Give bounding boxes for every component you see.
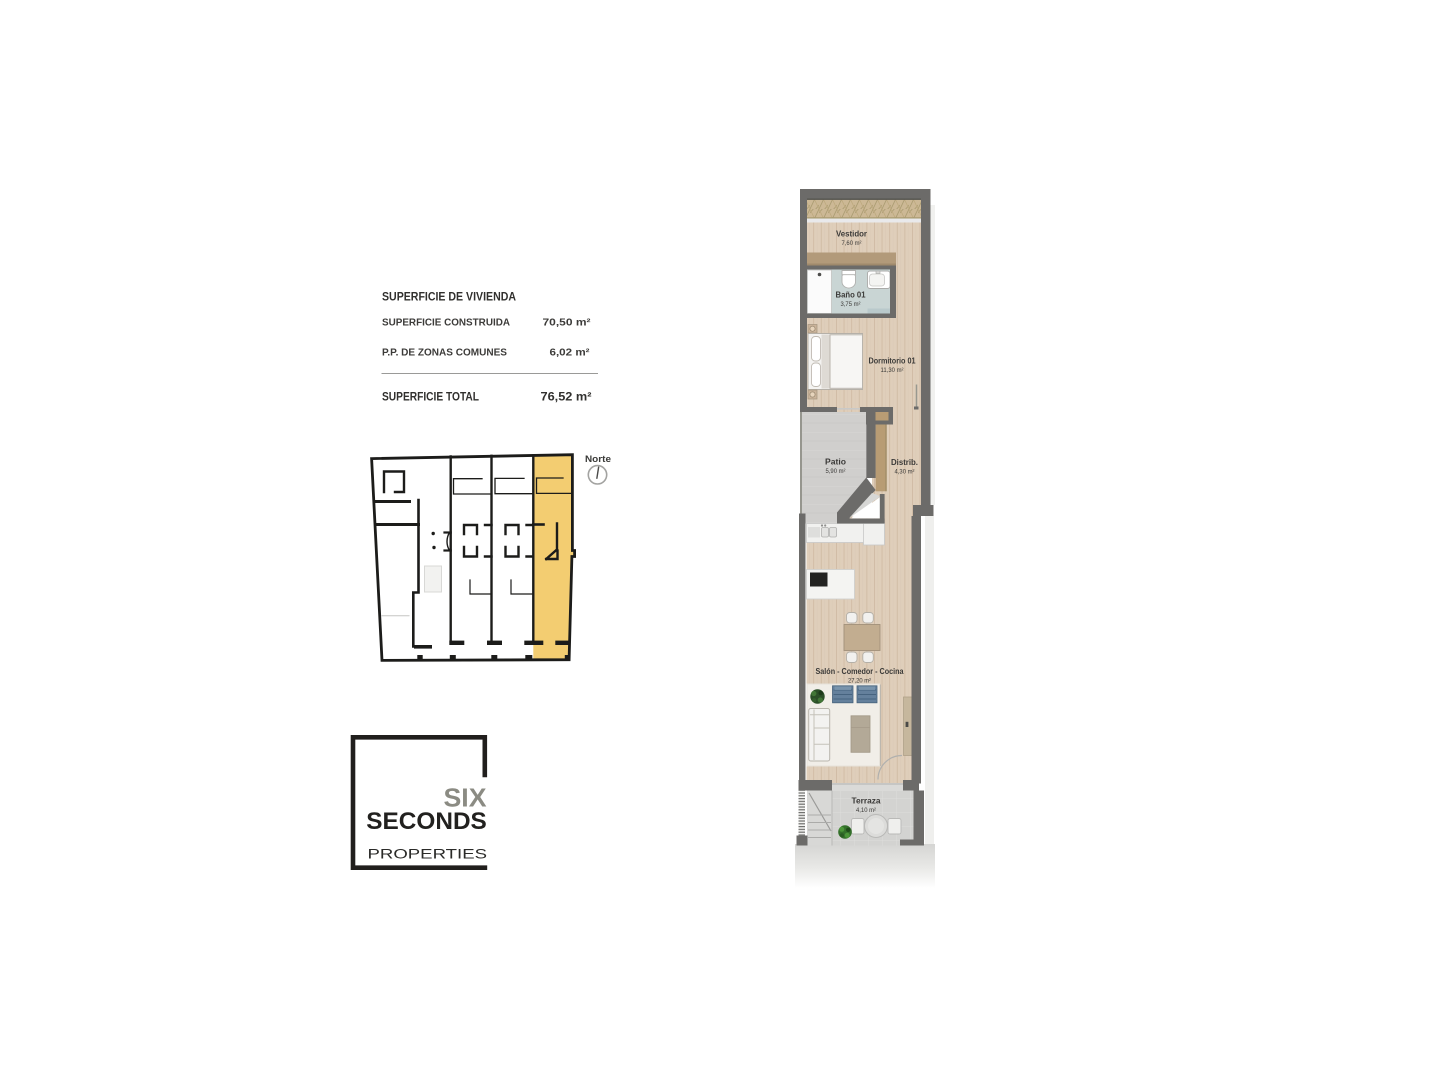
svg-text:P.P. DE ZONAS COMUNES: P.P. DE ZONAS COMUNES	[382, 347, 507, 359]
svg-text:Distrib.: Distrib.	[891, 458, 918, 467]
svg-text:SUPERFICIE TOTAL: SUPERFICIE TOTAL	[382, 390, 479, 404]
svg-text:6,02 m²: 6,02 m²	[550, 347, 591, 359]
svg-text:SUPERFICIE DE VIVIENDA: SUPERFICIE DE VIVIENDA	[382, 292, 516, 304]
svg-text:Vestidor: Vestidor	[836, 230, 868, 239]
svg-text:76,52 m²: 76,52 m²	[541, 390, 592, 404]
svg-text:11,30 m²: 11,30 m²	[881, 368, 904, 374]
svg-text:Salón - Comedor - Cocina: Salón - Comedor - Cocina	[816, 667, 904, 676]
svg-text:7,60 m²: 7,60 m²	[842, 241, 862, 247]
svg-text:4,10 m²: 4,10 m²	[856, 808, 876, 814]
svg-text:SECONDS: SECONDS	[366, 808, 487, 835]
svg-text:Baño 01: Baño 01	[836, 291, 866, 300]
svg-text:27,20 m²: 27,20 m²	[848, 679, 871, 685]
svg-text:70,50 m²: 70,50 m²	[543, 317, 592, 329]
svg-text:SUPERFICIE CONSTRUIDA: SUPERFICIE CONSTRUIDA	[382, 317, 510, 329]
svg-text:3,75 m²: 3,75 m²	[841, 302, 861, 308]
svg-text:PROPERTIES: PROPERTIES	[368, 847, 488, 862]
svg-text:Norte: Norte	[585, 454, 611, 464]
svg-text:4,30 m²: 4,30 m²	[895, 470, 915, 476]
svg-text:5,90 m²: 5,90 m²	[826, 469, 846, 475]
svg-text:Terraza: Terraza	[852, 797, 881, 806]
svg-text:Patio: Patio	[825, 458, 846, 467]
svg-text:Dormitorio 01: Dormitorio 01	[869, 357, 916, 366]
